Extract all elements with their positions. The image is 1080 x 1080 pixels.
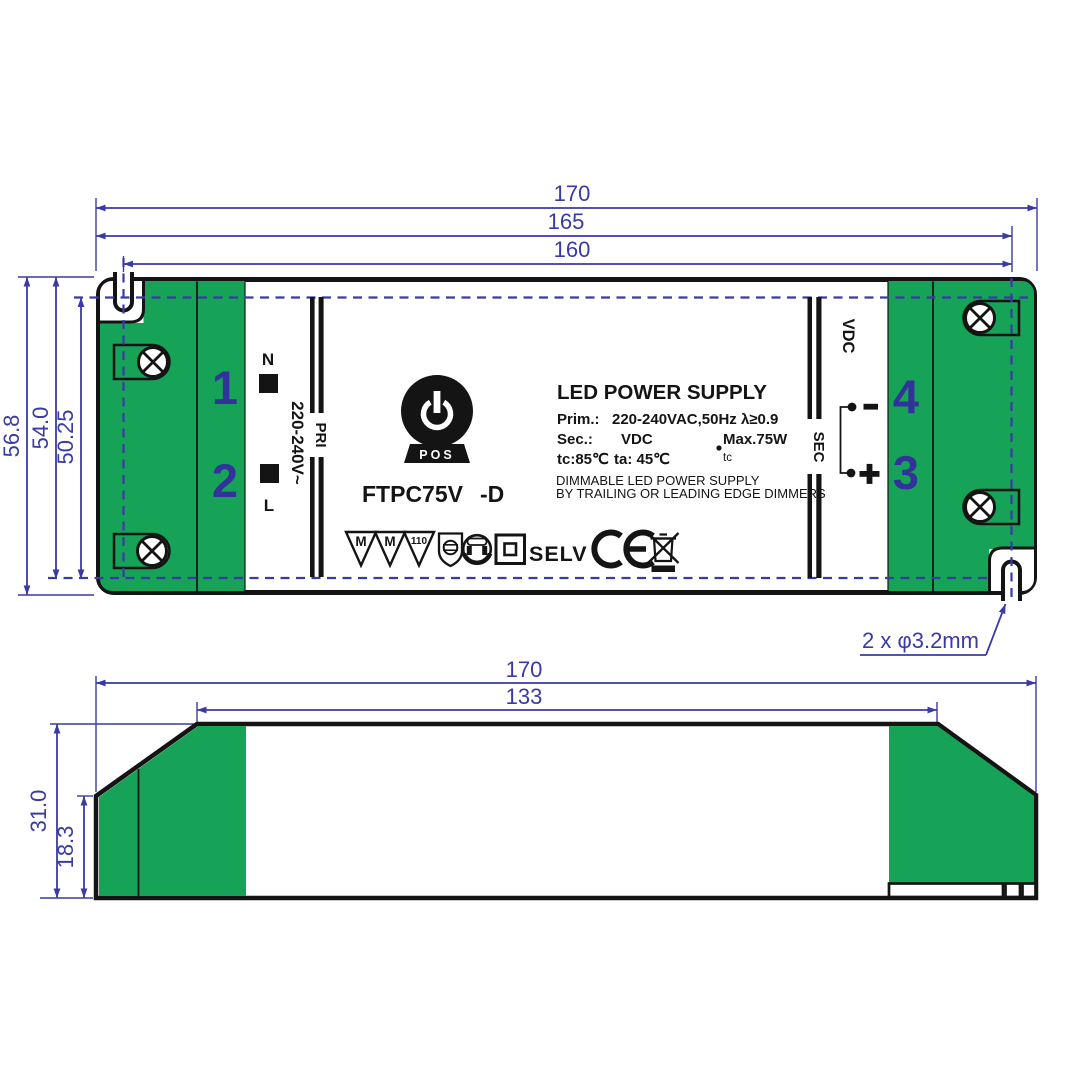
- sec-separator-line: [816, 297, 821, 419]
- model-suffix: -D: [480, 481, 504, 507]
- triangle-mark-text: 110: [411, 536, 428, 547]
- max-power: Max.75W: [723, 431, 788, 448]
- terminal-number-1: 1: [212, 361, 238, 414]
- hole-note-text: 2 x φ3.2mm: [862, 628, 979, 653]
- power-icon-bar: [434, 391, 441, 413]
- sec-label: SEC: [810, 432, 827, 463]
- prim-value: 220-240VAC,50Hz λ≥0.9: [612, 411, 778, 428]
- pos-logo: POS: [401, 375, 473, 463]
- line-terminal-mark: [260, 464, 279, 483]
- hole-note-leader: [986, 604, 1006, 655]
- minus-terminal-dot: [848, 403, 857, 412]
- pri-label: PRI: [312, 422, 329, 447]
- dim-side-height: 31.0: [26, 790, 51, 833]
- triangle-mark-text: M: [384, 534, 395, 549]
- tc-value: tc:85℃: [557, 451, 609, 468]
- pri-separator-line: [310, 297, 315, 413]
- pri-separator-line: [319, 457, 324, 577]
- label-title: LED POWER SUPPLY: [557, 381, 767, 404]
- dim-height-slots: 50.25: [53, 409, 78, 464]
- vdc-label: VDC: [839, 319, 857, 354]
- screw-icon: [966, 493, 995, 522]
- tc-point-label: tc: [723, 452, 732, 464]
- tc-point-dot: [716, 445, 721, 450]
- terminal-number-3: 3: [893, 446, 919, 499]
- neutral-terminal-mark: [259, 374, 278, 393]
- technical-drawing: 170 165 160 56.8 54.0 50.25: [0, 0, 1080, 1080]
- minus-symbol: [864, 404, 879, 410]
- plus-symbol: [867, 464, 873, 484]
- dim-side-top-width: 133: [506, 684, 543, 709]
- sec-separator-line: [808, 297, 813, 419]
- terminal-strip-segment: [1006, 884, 1021, 898]
- dim-side-edge-height: 18.3: [53, 826, 78, 869]
- screw-icon: [966, 304, 995, 333]
- dim-side-width: 170: [506, 657, 543, 682]
- pri-separator-line: [310, 457, 315, 577]
- ta-value: ta: 45℃: [614, 451, 670, 468]
- sec-separator-line: [816, 474, 821, 578]
- dim-width-slots: 160: [554, 237, 591, 262]
- side-view-body: [96, 724, 1036, 898]
- left-end-cap: [100, 281, 245, 592]
- plus-terminal-dot: [847, 469, 856, 478]
- triangle-mark-text: M: [355, 534, 366, 549]
- dim-width-outer: 170: [554, 181, 591, 206]
- dim-width-mid: 165: [548, 209, 585, 234]
- side-left-end-cap: [99, 726, 246, 896]
- prim-label: Prim.:: [557, 411, 600, 428]
- side-right-end-cap: [889, 726, 1034, 884]
- sec-label: Sec.:: [557, 431, 593, 448]
- dimmable-line2: BY TRAILING OR LEADING EDGE DIMMERS: [556, 486, 826, 501]
- terminal-strip-segment: [1023, 884, 1036, 898]
- sec-separator-line: [808, 474, 813, 578]
- terminal-strip: [889, 884, 1003, 898]
- hole-note: 2 x φ3.2mm: [860, 604, 1006, 655]
- dim-height-mid: 54.0: [28, 407, 53, 450]
- dim-height-outer: 56.8: [0, 415, 24, 458]
- sec-value: VDC: [621, 431, 653, 448]
- drawing-svg: 170 165 160 56.8 54.0 50.25: [0, 0, 1080, 1080]
- neutral-terminal-label: N: [262, 350, 274, 369]
- screw-icon: [138, 537, 167, 566]
- logo-text: POS: [419, 448, 454, 462]
- model-number: FTPC75V: [362, 481, 464, 507]
- selv-mark: SELV: [529, 542, 588, 566]
- input-voltage-label: 220-240V~: [288, 401, 307, 485]
- terminal-number-4: 4: [893, 370, 919, 423]
- terminal-number-2: 2: [212, 454, 238, 507]
- screw-icon: [139, 348, 168, 377]
- line-terminal-label: L: [264, 496, 274, 515]
- pri-separator-line: [319, 297, 324, 413]
